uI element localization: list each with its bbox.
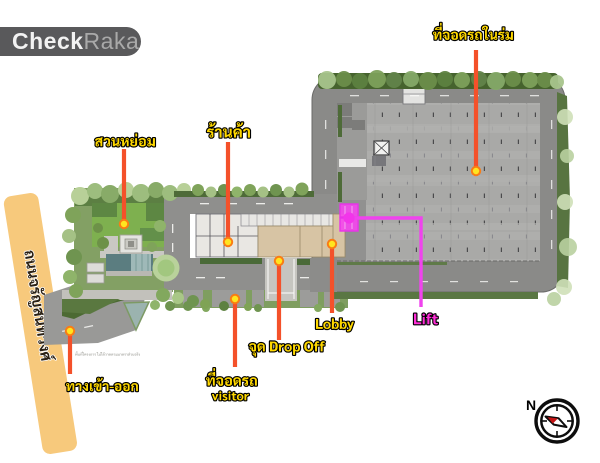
svg-text:CheckRaka: CheckRaka — [12, 28, 139, 54]
svg-text:N: N — [526, 397, 536, 413]
